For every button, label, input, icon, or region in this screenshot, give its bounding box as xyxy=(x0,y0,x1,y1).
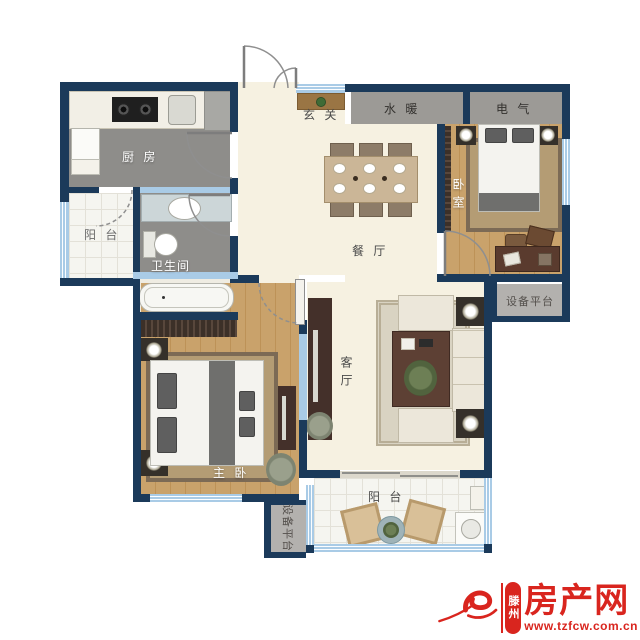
living-side-table-top xyxy=(456,297,485,326)
wall-bedroom-left xyxy=(437,124,445,233)
wall-equipment-right-bottom xyxy=(490,316,570,322)
partition-tv-wall xyxy=(299,334,307,420)
watermark-divider xyxy=(501,583,503,633)
equipment-bottom-label-box: 设备平台 xyxy=(266,504,310,552)
dining-table-icon xyxy=(324,156,418,203)
kitchen-label: 厨 房 xyxy=(122,148,158,165)
equipment-right-label: 设备平台 xyxy=(506,293,554,309)
wall-bathroom-left xyxy=(133,187,140,320)
tv-icon xyxy=(313,330,318,402)
bedroom-label: 卧室 xyxy=(450,178,467,214)
stove-icon xyxy=(112,97,158,122)
equipment-bottom-label: 设备平台 xyxy=(280,504,296,552)
wall-equipment-right-outer xyxy=(562,274,570,322)
living-label: 客厅 xyxy=(338,356,355,392)
wall-kitchen-top xyxy=(60,82,238,91)
coffee-table-plant-icon xyxy=(404,360,437,396)
armchair-top-icon xyxy=(398,295,454,331)
bathtub-icon xyxy=(139,283,234,312)
master-door-leaf xyxy=(295,279,305,325)
wall-bedroom-bottom xyxy=(437,274,570,282)
balcony-table-icon xyxy=(377,516,405,544)
wall-kitchen-right-lower xyxy=(230,178,238,194)
dining-label: 餐 厅 xyxy=(352,242,388,259)
wall-bathtub-bottom xyxy=(133,312,238,320)
washing-machine-icon xyxy=(455,512,486,545)
kitchen-tall-cabinet xyxy=(204,91,232,131)
plumbing-label: 水 暖 xyxy=(384,100,420,117)
wall-living-bottom-left xyxy=(299,470,340,478)
brand-site-name: 房产网 xyxy=(524,584,638,618)
wall-master-door-jamb xyxy=(238,275,259,283)
wall-kitchen-balcony-divider xyxy=(69,187,99,193)
master-plant-icon xyxy=(266,453,296,486)
window-balcony-bottom-right xyxy=(484,478,492,544)
bedroom-desk-icon xyxy=(495,246,560,272)
sliding-door-panel xyxy=(342,472,400,474)
master-wardrobe xyxy=(141,320,237,337)
wall-master-left xyxy=(133,312,141,502)
wall-balcony-left-bottom xyxy=(60,278,140,286)
dining-chair xyxy=(388,201,412,217)
bedroom-bed-icon xyxy=(478,124,540,212)
wall-top-right xyxy=(345,84,570,92)
wall-balcony-corner-right xyxy=(484,544,492,553)
brand-text-block: 房产网 www.tzfcw.com.cn xyxy=(524,584,638,633)
brand-url: www.tzfcw.com.cn xyxy=(524,619,638,633)
bedroom-nightstand-right xyxy=(538,126,558,145)
balcony-bottom-label: 阳 台 xyxy=(368,488,404,505)
bathroom-label: 卫生间 xyxy=(151,257,190,274)
living-plant-icon xyxy=(306,412,333,440)
armchair-bottom-icon xyxy=(398,408,454,443)
kitchen-base-cabinet xyxy=(71,159,100,175)
watermark: 滕州 房产网 www.tzfcw.com.cn xyxy=(438,578,638,638)
wall-left-upper xyxy=(60,82,69,202)
sofa-long-icon xyxy=(452,328,487,412)
window-balcony-left xyxy=(60,202,69,278)
bedroom-nightstand-left xyxy=(456,126,476,145)
window-balcony-bottom xyxy=(314,544,484,552)
master-tv-stand xyxy=(278,386,296,450)
master-bed-icon xyxy=(150,360,264,466)
dining-chair xyxy=(330,201,354,217)
wall-right-mid xyxy=(562,205,570,282)
balcony-left-label: 阳 台 xyxy=(84,226,120,243)
master-tv-icon xyxy=(282,396,286,440)
fridge-icon xyxy=(71,128,100,161)
wall-kitchen-right-upper xyxy=(230,82,238,132)
master-nightstand-top xyxy=(141,338,168,361)
wall-box-divider xyxy=(463,84,470,124)
electrical-label: 电 气 xyxy=(496,100,532,117)
kitchen-sink-icon xyxy=(168,95,196,125)
entry-label: 玄 关 xyxy=(303,106,339,123)
brand-city-badge: 滕州 xyxy=(505,582,521,634)
master-bedroom-label: 主 卧 xyxy=(213,464,249,481)
wall-equipment-bottom-bottom xyxy=(264,552,306,558)
window-entry-top xyxy=(296,84,345,93)
brand-swoosh-icon xyxy=(438,579,500,637)
partition-kitchen-bathroom xyxy=(140,187,230,193)
bathroom-sink-icon xyxy=(168,197,201,220)
window-bedroom-right xyxy=(562,139,570,205)
dining-chair xyxy=(359,201,383,217)
coffee-table-icon xyxy=(392,331,450,407)
brand-city-label: 滕州 xyxy=(505,595,521,621)
window-master-bottom xyxy=(150,494,242,502)
living-side-table-bottom xyxy=(456,409,485,438)
toilet-bowl-icon xyxy=(154,233,178,256)
wall-right-upper xyxy=(562,84,570,139)
sliding-door-panel xyxy=(400,475,458,477)
